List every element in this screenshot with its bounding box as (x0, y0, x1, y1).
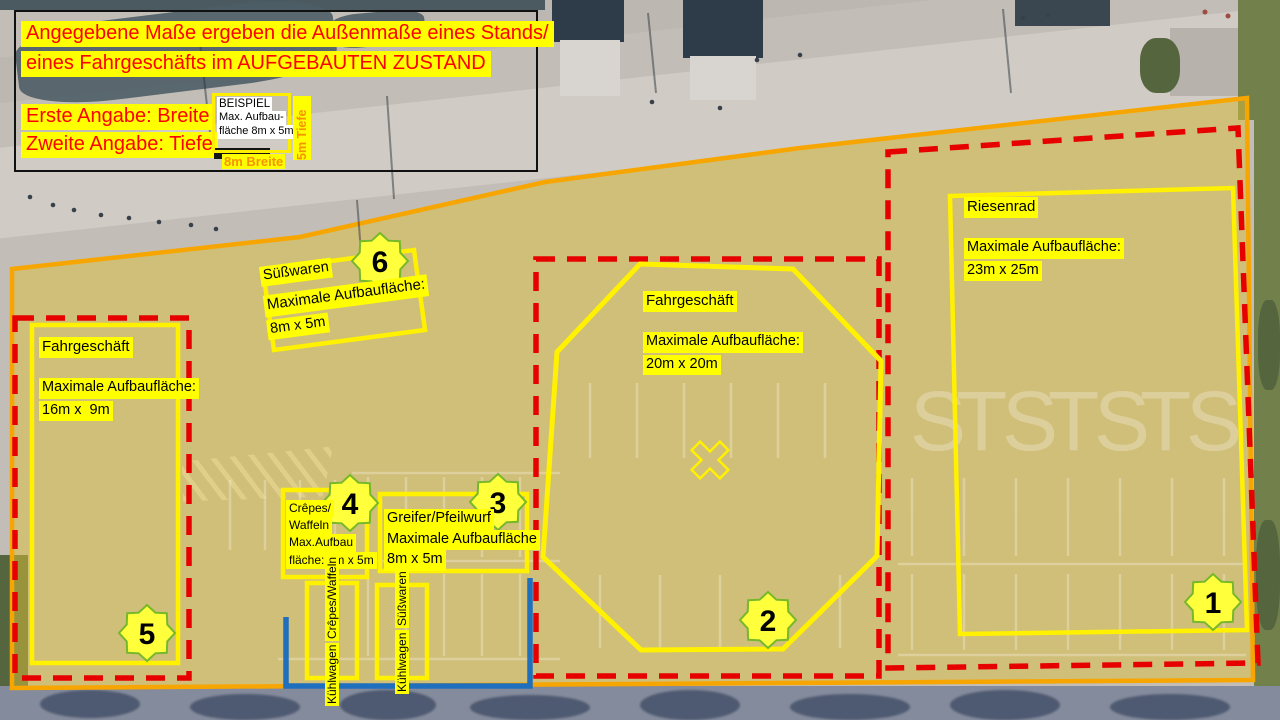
pavement-letters: S T S T S T S (910, 374, 1242, 468)
zone-2-label: Fahrgeschäft Maximale Aufbaufläche: 20m … (643, 291, 803, 375)
cooler-1-line1: Kühlwagen (325, 643, 339, 706)
zone-1-size: 23m x 25m (964, 261, 1042, 281)
example-title: BEISPIEL (217, 97, 272, 111)
svg-text:S: S (1186, 374, 1242, 468)
zone-5-size-label: Maximale Aufbaufläche: (39, 378, 199, 398)
zone-4-name-line1: Crêpes/ (286, 500, 334, 517)
cooler-2-line2: Süßwaren (395, 569, 409, 628)
cooler-1-line2: Crêpes/Waffeln (325, 555, 339, 641)
cooler-label-crepes: Kühlwagen Crêpes/Waffeln (309, 585, 355, 676)
badge-number-1: 1 (1205, 587, 1222, 620)
zone-5-label: Fahrgeschäft Maximale Aufbaufläche: 16m … (39, 337, 199, 421)
svg-text:T: T (1140, 374, 1191, 468)
example-depth-label: 5m Tiefe (293, 96, 311, 160)
zone-3-size: 8m x 5m (384, 550, 446, 571)
example-desc-line1: Max. Aufbau- (217, 111, 286, 125)
zone-4-name-line2: Waffeln (286, 517, 332, 534)
zone-3-size-label: Maximale Aufbaufläche (384, 530, 540, 551)
zone-1-label: Riesenrad Maximale Aufbaufläche: 23m x 2… (964, 197, 1124, 281)
zone-2-size: 20m x 20m (643, 355, 721, 375)
zone-3-label: Greifer/Pfeilwurf Maximale Aufbaufläche … (384, 509, 540, 571)
badge-number-2: 2 (760, 605, 777, 638)
example-width-label: 8m Breite (222, 154, 285, 169)
example-desc-line2: fläche 8m x 5m (217, 125, 296, 139)
legend-note-breite: Erste Angabe: Breite (21, 104, 214, 130)
legend-title-line1: Angegebene Maße ergeben die Außenmaße ei… (21, 21, 554, 47)
cooler-2-line1: Kühlwagen (395, 630, 409, 693)
legend-box: Angegebene Maße ergeben die Außenmaße ei… (14, 10, 538, 172)
zone-5-size: 16m x 9m (39, 401, 113, 421)
badge-number-5: 5 (139, 618, 156, 651)
zone-2-name: Fahrgeschäft (643, 291, 737, 312)
zone-2-size-label: Maximale Aufbaufläche: (643, 332, 803, 352)
zone-1-name: Riesenrad (964, 197, 1038, 218)
zone-4-size-label: Max.Aufbau (286, 534, 356, 551)
legend-title-line2: eines Fahrgeschäfts im AUFGEBAUTEN ZUSTA… (21, 51, 491, 77)
zone-3-name: Greifer/Pfeilwurf (384, 509, 494, 530)
cooler-label-suesswaren: Kühlwagen Süßwaren (379, 587, 425, 676)
zone-5-name: Fahrgeschäft (39, 337, 133, 358)
fairground-site-plan: S T S T S T S (0, 0, 1280, 720)
legend-example-box: BEISPIEL Max. Aufbau- fläche 8m x 5m (212, 93, 291, 153)
svg-text:T: T (956, 374, 1007, 468)
legend-note-tiefe: Zweite Angabe: Tiefe (21, 132, 218, 158)
svg-text:T: T (1048, 374, 1099, 468)
zone-1-size-label: Maximale Aufbaufläche: (964, 238, 1124, 258)
